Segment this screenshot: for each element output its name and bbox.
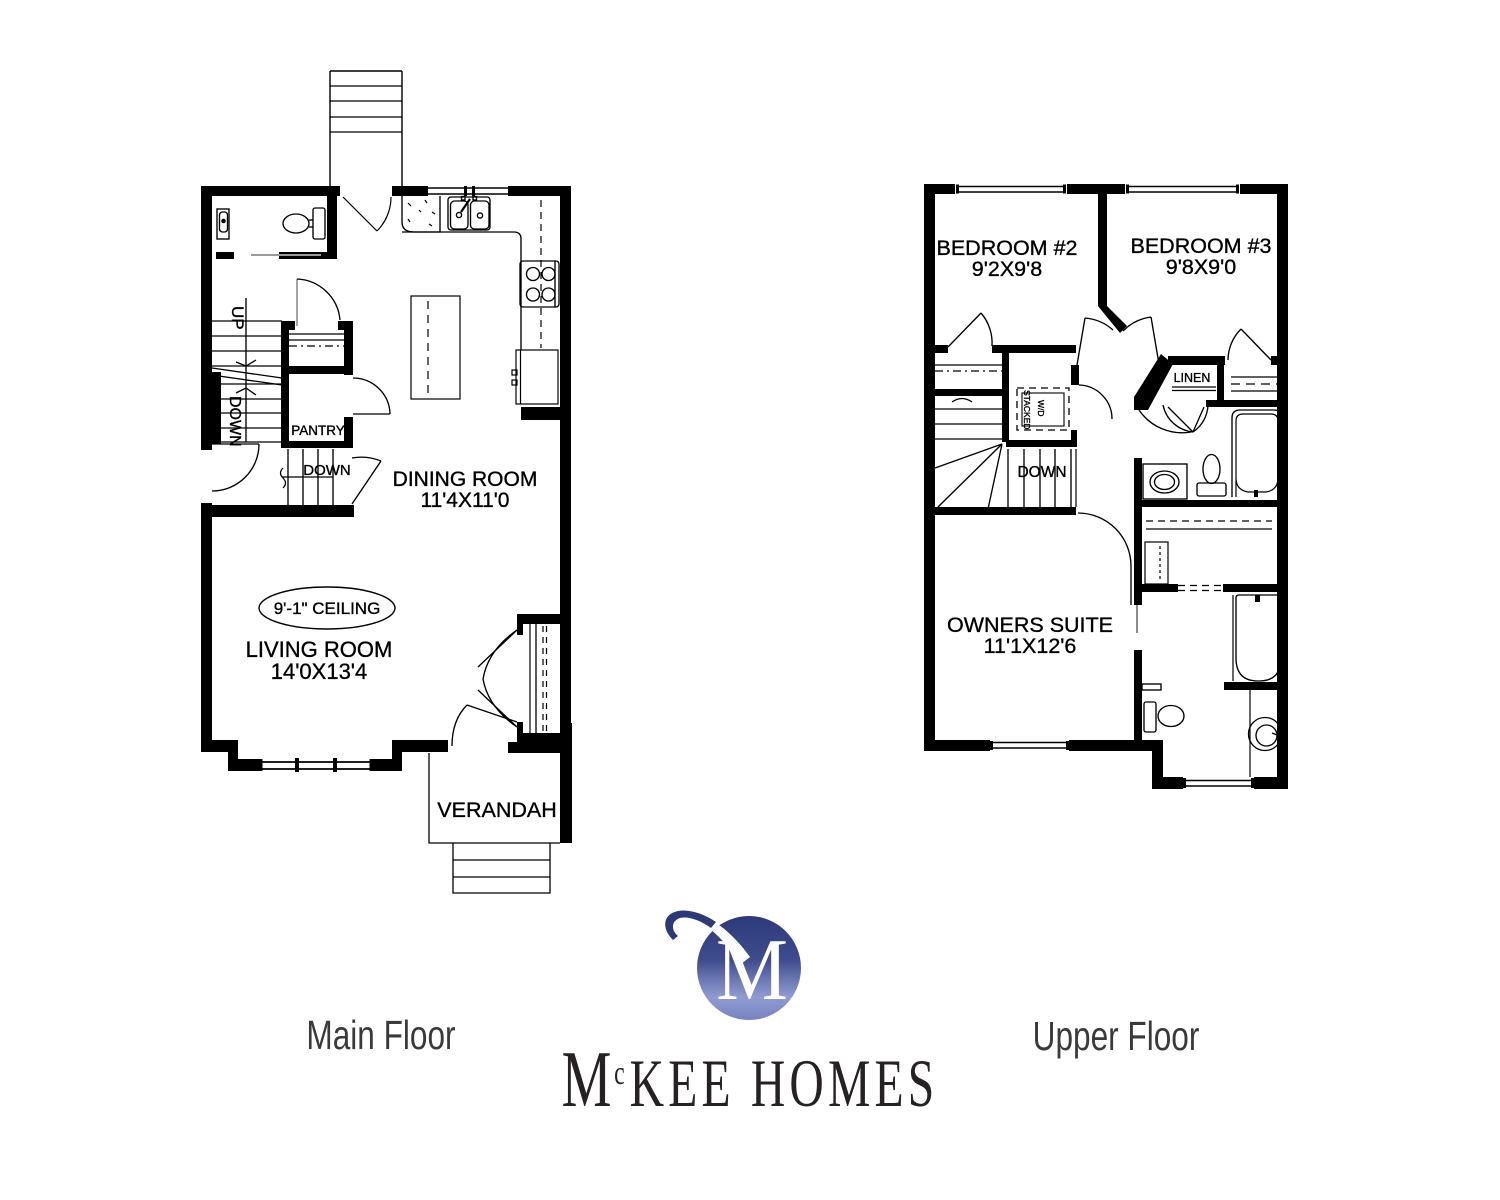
svg-text:DOWN: DOWN <box>303 462 351 479</box>
svg-text:LINEN: LINEN <box>1174 371 1211 385</box>
svg-text:VERANDAH: VERANDAH <box>437 798 556 822</box>
svg-text:14'0X13'4: 14'0X13'4 <box>271 659 368 684</box>
svg-text:Main Floor: Main Floor <box>306 1012 455 1058</box>
svg-text:DINING ROOM: DINING ROOM <box>393 468 538 491</box>
svg-text:M: M <box>716 922 788 1019</box>
svg-text:DOWN: DOWN <box>1017 464 1066 481</box>
svg-text:9'8X9'0: 9'8X9'0 <box>1166 255 1236 279</box>
svg-text:PANTRY: PANTRY <box>291 423 345 438</box>
svg-text:W/D: W/D <box>1036 400 1046 417</box>
svg-text:STACKED: STACKED <box>1022 390 1032 430</box>
svg-text:9'-1" CEILING: 9'-1" CEILING <box>274 599 381 618</box>
svg-text:DOWN: DOWN <box>226 396 243 447</box>
svg-text:11'1X12'6: 11'1X12'6 <box>984 634 1077 658</box>
svg-text:9'2X9'8: 9'2X9'8 <box>972 257 1042 281</box>
svg-text:11'4X11'0: 11'4X11'0 <box>421 489 510 512</box>
svg-text:UP: UP <box>228 306 247 330</box>
svg-text:Upper Floor: Upper Floor <box>1033 1013 1200 1059</box>
